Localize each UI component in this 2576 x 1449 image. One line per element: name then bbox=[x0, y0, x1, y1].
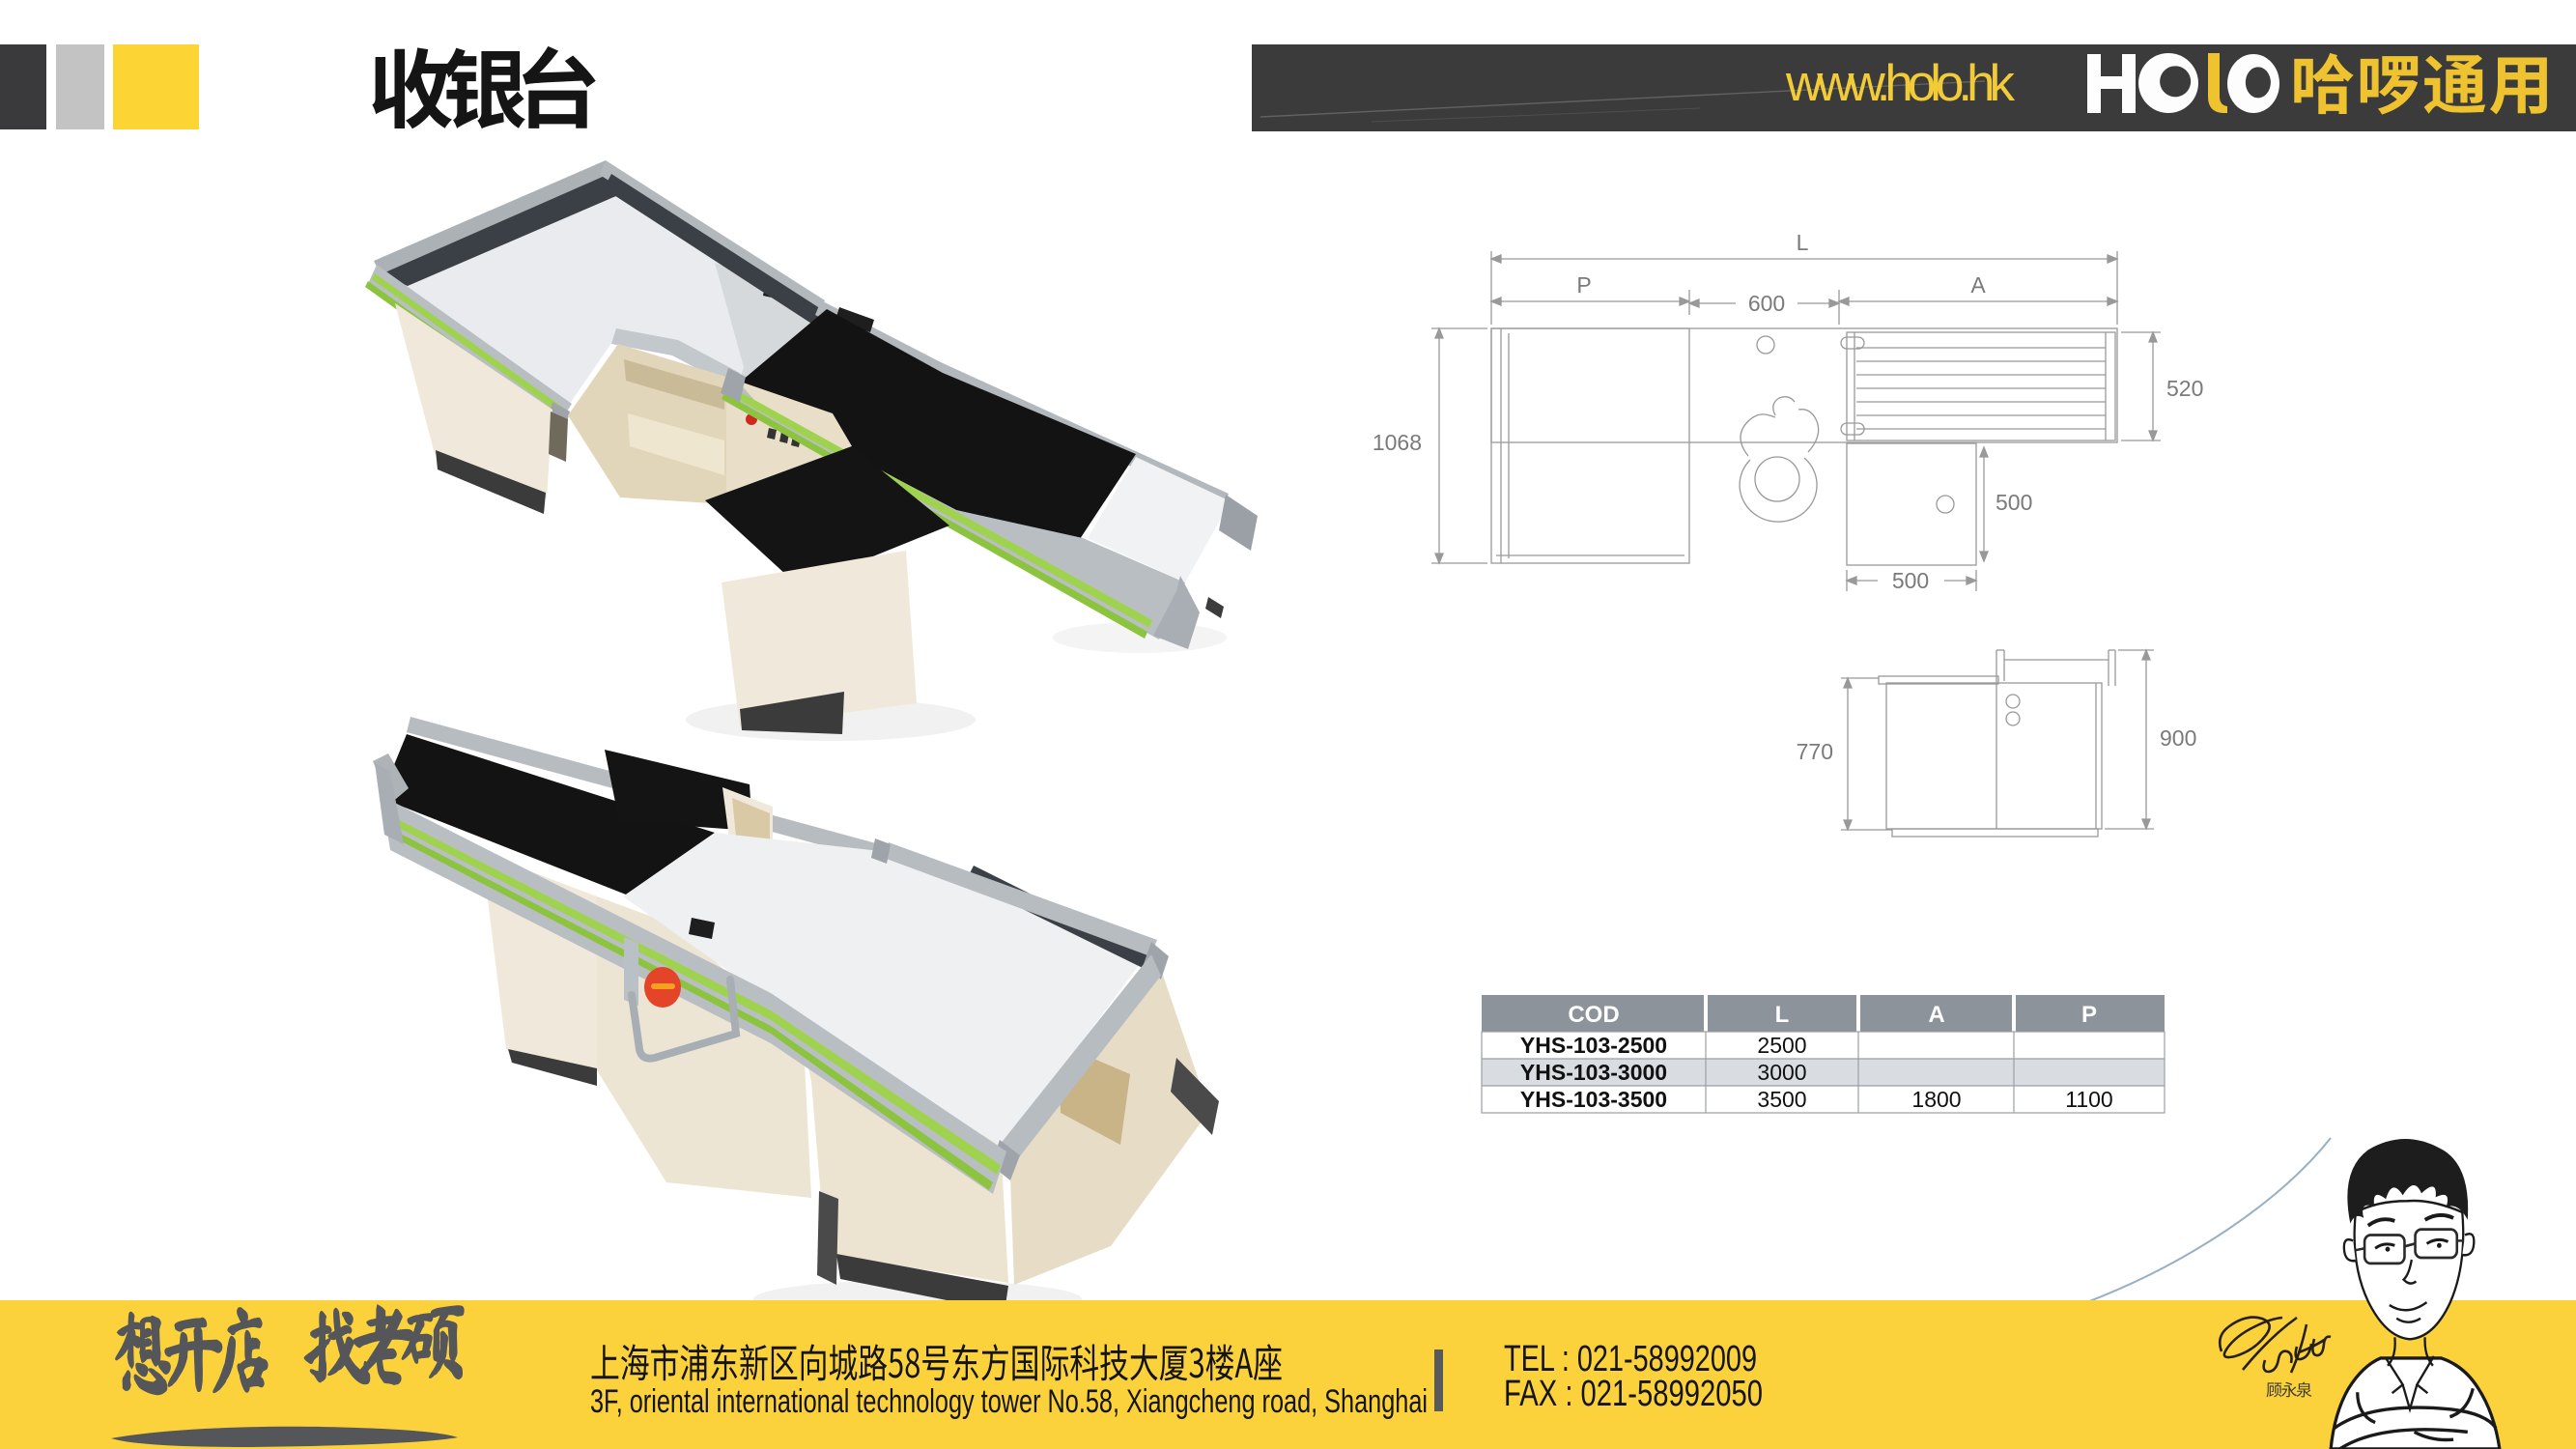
svg-text:2500: 2500 bbox=[1757, 1033, 1806, 1058]
svg-text:1068: 1068 bbox=[1373, 430, 1422, 455]
svg-text:YHS-103-3500: YHS-103-3500 bbox=[1520, 1087, 1667, 1112]
svg-text:L: L bbox=[1797, 230, 1809, 255]
svg-text:YHS-103-3000: YHS-103-3000 bbox=[1520, 1060, 1667, 1085]
svg-text:3500: 3500 bbox=[1757, 1087, 1806, 1112]
svg-text:500: 500 bbox=[1892, 568, 1929, 593]
svg-text:500: 500 bbox=[1996, 490, 2032, 515]
svg-text:FAX : 021-58992050: FAX : 021-58992050 bbox=[1504, 1374, 1763, 1414]
svg-text:520: 520 bbox=[2166, 376, 2203, 401]
svg-text:YHS-103-2500: YHS-103-2500 bbox=[1520, 1033, 1667, 1058]
svg-text:3F, oriental international tec: 3F, oriental international technology to… bbox=[590, 1383, 1428, 1420]
svg-text:www.holo.hk: www.holo.hk bbox=[1785, 55, 2016, 112]
svg-text:P: P bbox=[2081, 1002, 2097, 1028]
svg-text:1800: 1800 bbox=[1911, 1087, 1961, 1112]
svg-text:600: 600 bbox=[1748, 291, 1785, 316]
svg-text:L: L bbox=[1775, 1002, 1790, 1028]
svg-text:770: 770 bbox=[1797, 739, 1833, 764]
svg-text:COD: COD bbox=[1568, 1002, 1619, 1028]
svg-text:P: P bbox=[1576, 272, 1591, 298]
svg-text:3000: 3000 bbox=[1757, 1060, 1806, 1085]
svg-text:900: 900 bbox=[2160, 725, 2196, 751]
svg-text:A: A bbox=[1928, 1002, 1944, 1028]
svg-text:1100: 1100 bbox=[2065, 1087, 2112, 1112]
svg-text:A: A bbox=[1970, 272, 1986, 298]
